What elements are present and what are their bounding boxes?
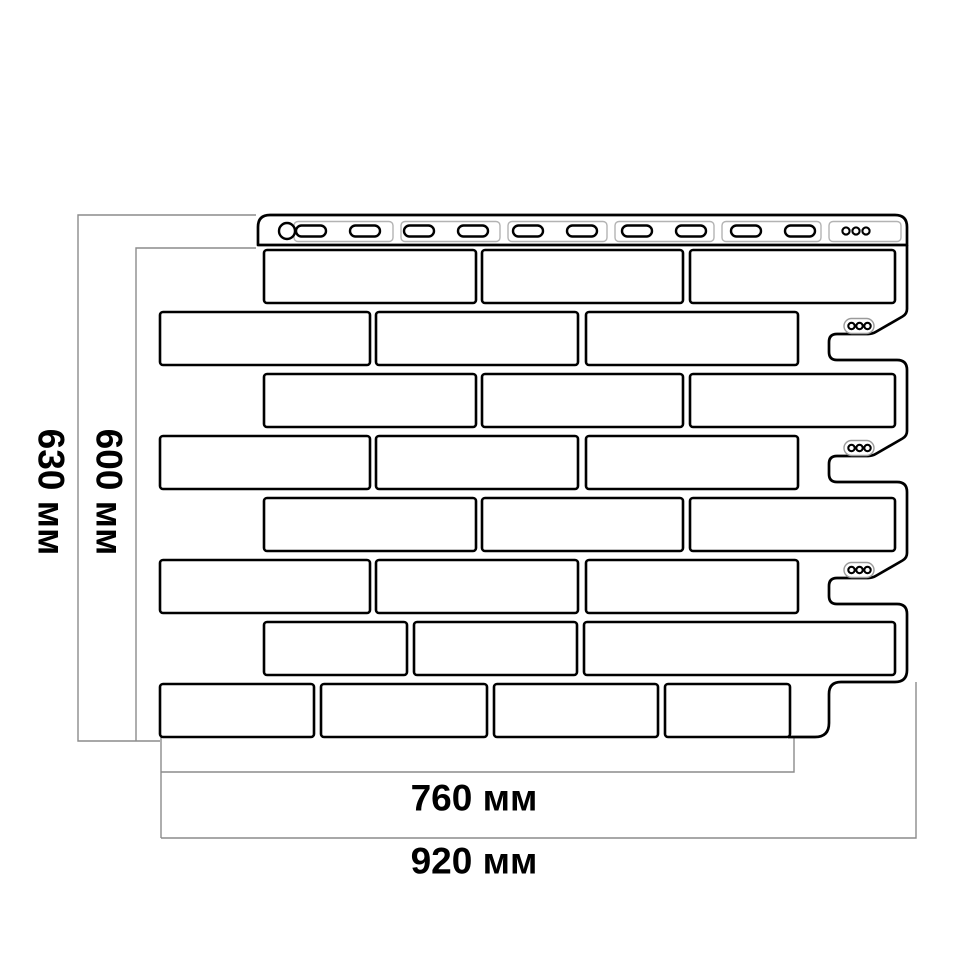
pin-hole-icon — [856, 567, 862, 573]
nail-strip — [258, 215, 907, 245]
nail-slot-icon — [404, 226, 434, 237]
dim-label-overall-height: 630 мм — [31, 429, 72, 556]
three-hole-badge-icon — [844, 563, 874, 578]
nail-slot-icon — [567, 226, 597, 237]
pin-hole-icon — [842, 227, 849, 234]
nail-slot-icon — [458, 226, 488, 237]
brick — [414, 622, 577, 675]
brick — [586, 436, 798, 489]
pin-hole-icon — [856, 323, 862, 329]
diagram-canvas: 630 мм 600 мм 760 мм 920 мм — [0, 0, 960, 960]
nail-slot-icon — [296, 226, 326, 237]
brick — [482, 374, 683, 427]
brick — [690, 498, 895, 551]
brick — [264, 374, 476, 427]
brick — [482, 498, 683, 551]
brick — [264, 498, 476, 551]
brick — [482, 250, 683, 303]
pin-hole-icon — [862, 227, 869, 234]
pin-hole-icon — [848, 567, 854, 573]
nail-slot-icon — [785, 226, 815, 237]
brick — [376, 436, 578, 489]
nail-slot-icon — [513, 226, 543, 237]
pin-hole-icon — [848, 323, 854, 329]
pin-hole-icon — [852, 227, 859, 234]
brick — [584, 622, 895, 675]
dim-label-face-height: 600 мм — [89, 429, 130, 556]
brick-rows — [160, 250, 895, 737]
brick — [690, 250, 895, 303]
brick — [586, 312, 798, 365]
brick — [160, 436, 370, 489]
brick — [690, 374, 895, 427]
nail-slot-icon — [622, 226, 652, 237]
three-hole-badge-icon — [844, 319, 874, 334]
brick — [376, 560, 578, 613]
pin-hole-icon — [864, 445, 870, 451]
nail-slot-icon — [350, 226, 380, 237]
brick — [264, 622, 407, 675]
round-nail-hole-icon — [279, 223, 295, 239]
pin-hole-icon — [864, 323, 870, 329]
brick — [586, 560, 798, 613]
brick — [376, 312, 578, 365]
brick — [160, 312, 370, 365]
brick — [494, 684, 658, 737]
nail-slot-icon — [731, 226, 761, 237]
dim-760-bracket — [161, 737, 794, 772]
brick — [160, 684, 314, 737]
pin-hole-icon — [864, 567, 870, 573]
brick — [321, 684, 487, 737]
three-hole-badge-icon — [844, 441, 874, 456]
panel-dimension-diagram: 630 мм 600 мм 760 мм 920 мм — [0, 0, 960, 960]
brick — [665, 684, 790, 737]
dim-label-face-width: 760 мм — [411, 778, 538, 819]
nail-slot-icon — [676, 226, 706, 237]
dim-label-overall-width: 920 мм — [411, 841, 538, 882]
pin-hole-icon — [856, 445, 862, 451]
brick — [160, 560, 370, 613]
pin-hole-icon — [848, 445, 854, 451]
brick — [264, 250, 476, 303]
